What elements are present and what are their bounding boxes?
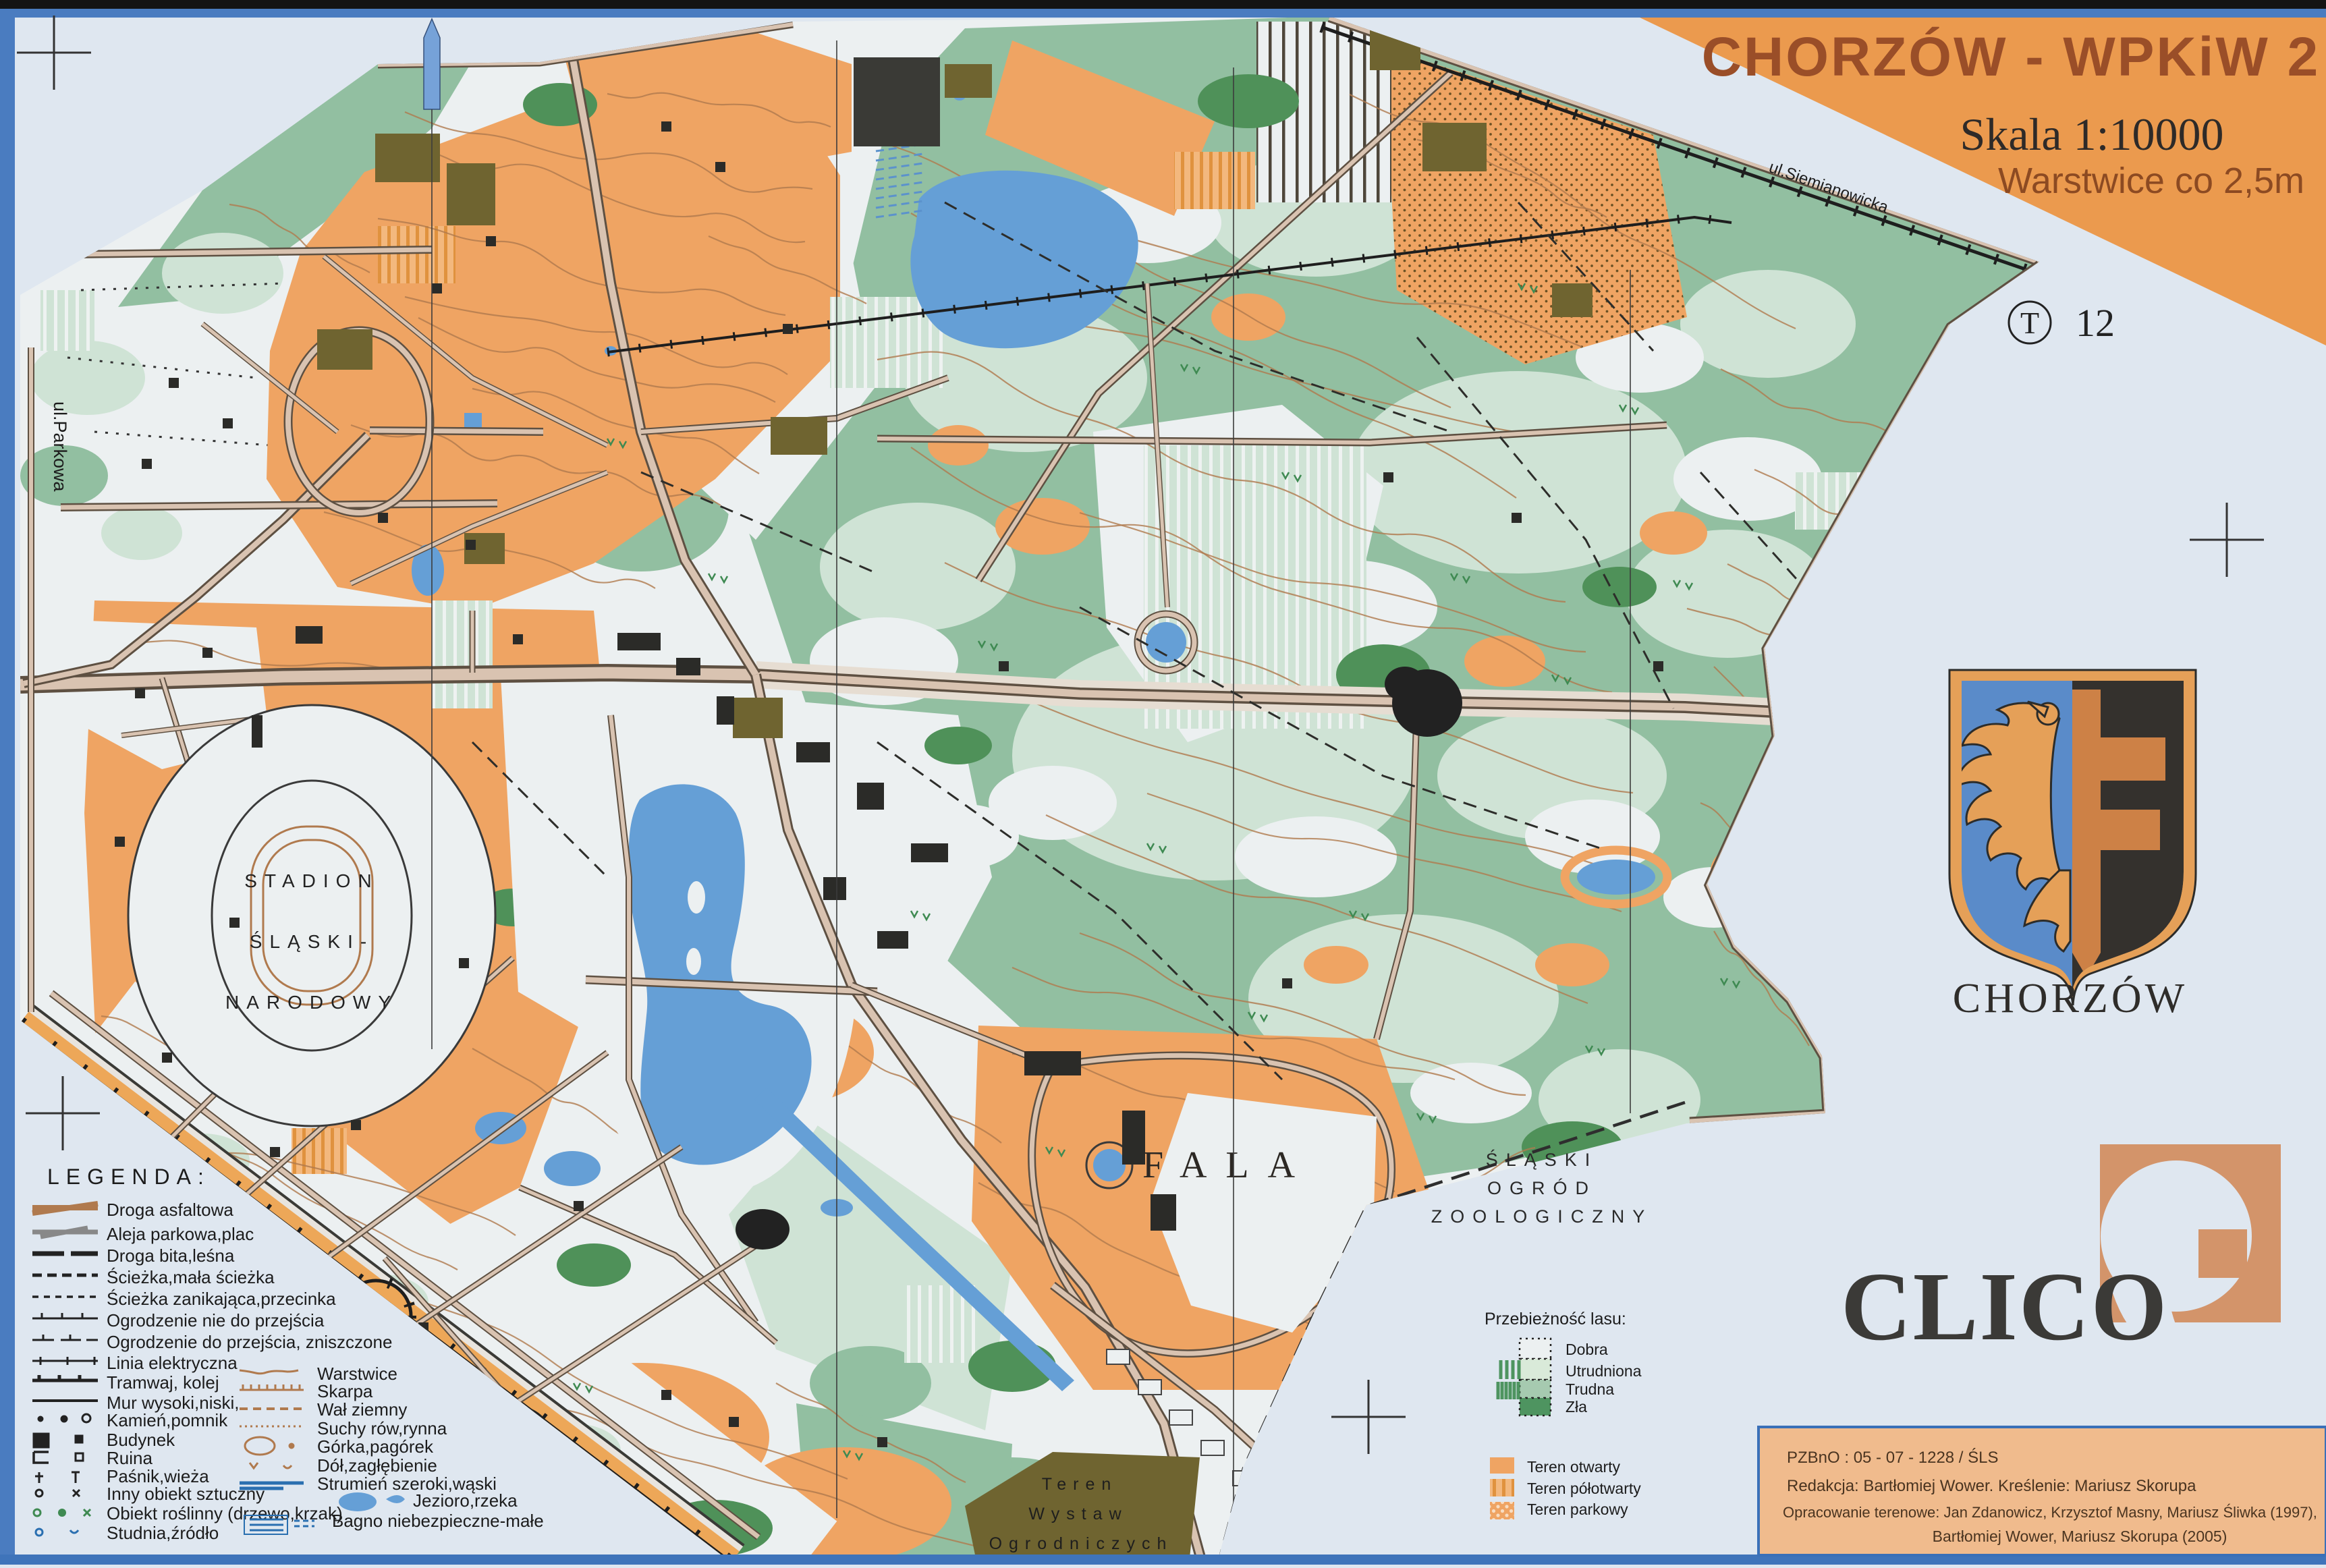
- svg-text:Utrudniona: Utrudniona: [1566, 1362, 1642, 1380]
- svg-text:Dół,zagłębienie: Dół,zagłębienie: [317, 1455, 437, 1476]
- svg-text:Droga bita,leśna: Droga bita,leśna: [107, 1245, 235, 1266]
- svg-text:Teren parkowy: Teren parkowy: [1527, 1501, 1628, 1518]
- svg-text:ZOOLOGICZNY: ZOOLOGICZNY: [1431, 1206, 1653, 1227]
- svg-text:ul.Parkowa: ul.Parkowa: [50, 401, 70, 493]
- svg-text:Wystaw: Wystaw: [1028, 1505, 1128, 1523]
- svg-text:Kamień,pomnik: Kamień,pomnik: [107, 1410, 228, 1430]
- svg-text:Budynek: Budynek: [107, 1430, 175, 1450]
- svg-text:Ogrodniczych: Ogrodniczych: [989, 1534, 1173, 1553]
- svg-text:Studnia,źródło: Studnia,źródło: [107, 1523, 219, 1543]
- svg-text:Droga asfaltowa: Droga asfaltowa: [107, 1200, 233, 1220]
- svg-text:CHORZÓW - WPKiW 2: CHORZÓW - WPKiW 2: [1702, 26, 2320, 88]
- svg-text:PZBnO : 05 - 07 - 1228 / ŚLS: PZBnO : 05 - 07 - 1228 / ŚLS: [1787, 1448, 1999, 1467]
- svg-text:FALA: FALA: [1142, 1144, 1314, 1186]
- svg-text:Dobra: Dobra: [1566, 1341, 1608, 1358]
- svg-text:12: 12: [2076, 301, 2115, 345]
- svg-text:Zła: Zła: [1566, 1398, 1587, 1416]
- svg-text:NARODOWY: NARODOWY: [225, 992, 398, 1013]
- svg-text:Bagno niebezpieczne-małe: Bagno niebezpieczne-małe: [332, 1511, 544, 1531]
- svg-text:Wał ziemny: Wał ziemny: [317, 1399, 407, 1420]
- svg-text:Bartłomiej Wower, Mariusz Skor: Bartłomiej Wower, Mariusz Skorupa (2005): [1933, 1528, 2227, 1545]
- svg-text:Suchy rów,rynna: Suchy rów,rynna: [317, 1418, 447, 1438]
- svg-text:Trudna: Trudna: [1566, 1380, 1614, 1398]
- svg-text:Warstwice co 2,5m: Warstwice co 2,5m: [1998, 161, 2304, 201]
- svg-text:Ogrodzenie do przejścia, znisz: Ogrodzenie do przejścia, zniszczone: [107, 1332, 392, 1352]
- svg-text:LEGENDA:: LEGENDA:: [47, 1165, 211, 1189]
- svg-text:Linia elektryczna: Linia elektryczna: [107, 1353, 238, 1373]
- svg-text:CHORZÓW: CHORZÓW: [1953, 976, 2188, 1021]
- svg-text:Tramwaj, kolej: Tramwaj, kolej: [107, 1372, 219, 1393]
- svg-text:T: T: [2020, 306, 2039, 340]
- svg-text:Aleja parkowa,plac: Aleja parkowa,plac: [107, 1224, 254, 1244]
- svg-text:OGRÓD: OGRÓD: [1487, 1177, 1597, 1198]
- svg-text:Jezioro,rzeka: Jezioro,rzeka: [413, 1490, 518, 1511]
- svg-text:Ścieżka,mała ścieżka: Ścieżka,mała ścieżka: [107, 1267, 275, 1287]
- svg-text:Skarpa: Skarpa: [317, 1381, 373, 1401]
- svg-text:Ruina: Ruina: [107, 1448, 153, 1468]
- svg-text:Teren półotwarty: Teren półotwarty: [1527, 1480, 1641, 1497]
- svg-text:Redakcja: Bartłomiej Wower.: Redakcja: Bartłomiej Wower. Kreślenie: M…: [1787, 1477, 2196, 1495]
- svg-text:Przebieżność lasu:: Przebieżność lasu:: [1485, 1310, 1626, 1328]
- svg-text:Ścieżka zanikająca,przecinka: Ścieżka zanikająca,przecinka: [107, 1289, 336, 1309]
- svg-text:Teren: Teren: [1042, 1475, 1118, 1494]
- svg-text:ŚLĄSKI-: ŚLĄSKI-: [250, 930, 374, 952]
- svg-text:CLICO: CLICO: [1841, 1253, 2168, 1361]
- svg-text:STADION: STADION: [244, 870, 379, 891]
- svg-text:Skala 1:10000: Skala 1:10000: [1960, 109, 2224, 160]
- svg-text:Opracowanie terenowe: Jan Zdan: Opracowanie terenowe: Jan Zdanowicz, Krz…: [1783, 1504, 2317, 1521]
- svg-text:Teren otwarty: Teren otwarty: [1527, 1458, 1621, 1476]
- svg-text:ŚLĄSKI: ŚLĄSKI: [1486, 1148, 1599, 1170]
- svg-text:Ogrodzenie nie do przejścia: Ogrodzenie nie do przejścia: [107, 1310, 325, 1331]
- svg-text:Górka,pagórek: Górka,pagórek: [317, 1436, 434, 1457]
